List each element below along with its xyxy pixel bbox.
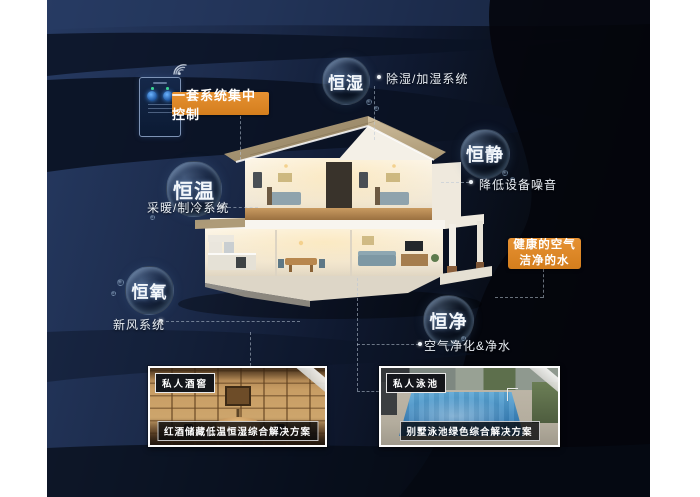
pool-card: 私人泳池 别墅泳池绿色综合解决方案 xyxy=(379,366,560,447)
panel-dial-icon xyxy=(147,91,157,101)
panel-status-leds xyxy=(145,87,175,90)
connector-highlight-horizontal xyxy=(495,297,543,298)
connector-humidity xyxy=(374,86,375,140)
connector-pool-card xyxy=(357,391,379,392)
bubble-oxygen-label: 恒氧 xyxy=(132,278,168,303)
label-temperature-system: 采暖/制冷系统 xyxy=(147,199,229,216)
mini-bubble xyxy=(374,106,379,111)
bubble-humidity: 恒湿 xyxy=(322,57,370,105)
connector-oxygen xyxy=(166,321,300,322)
connector-temperature xyxy=(228,207,258,208)
bubble-quiet-label: 恒静 xyxy=(466,141,504,167)
connector-purity-vertical xyxy=(357,278,358,391)
pool-ladder xyxy=(507,388,518,401)
connector-dot xyxy=(418,342,422,346)
connector-dot xyxy=(377,75,381,79)
highlight-line2: 洁净的水 xyxy=(520,254,570,269)
mini-bubble xyxy=(366,99,372,105)
wine-cellar-caption: 红酒储藏低温恒湿综合解决方案 xyxy=(157,421,318,441)
wifi-icon xyxy=(172,62,188,76)
mini-bubble xyxy=(111,291,116,296)
connector-dot xyxy=(469,180,473,184)
label-quiet-system: 降低设备噪音 xyxy=(479,176,557,193)
wall-art xyxy=(225,386,251,406)
healthy-air-water-badge: 健康的空气 洁净的水 xyxy=(508,238,581,269)
central-control-badge: 一套系统集中控制 xyxy=(172,92,269,115)
label-oxygen-system: 新风系统 xyxy=(113,316,165,333)
label-humidity-system: 除湿/加湿系统 xyxy=(386,70,468,87)
panel-text-row xyxy=(148,104,172,106)
connector-highlight-vertical xyxy=(543,269,544,298)
connector-wine-card xyxy=(250,332,251,366)
connector-quiet xyxy=(441,182,469,183)
connector-purity-horizontal xyxy=(357,344,419,345)
infographic-stage: 一套系统集中控制 恒湿 恒静 恒温 恒氧 恒净 除湿/加湿系统 降低设备噪音 采… xyxy=(0,0,700,497)
highlight-line1: 健康的空气 xyxy=(513,238,576,253)
panel-title-bar xyxy=(153,82,167,84)
mini-bubble xyxy=(117,279,124,286)
connector-control xyxy=(240,116,241,160)
bubble-purity-label: 恒净 xyxy=(430,308,468,334)
pool-tag: 私人泳池 xyxy=(386,373,446,393)
wine-cellar-tag: 私人酒窖 xyxy=(155,373,215,393)
wine-cellar-card: 私人酒窖 红酒储藏低温恒湿综合解决方案 xyxy=(148,366,327,447)
panel-text-row xyxy=(148,108,172,110)
bubble-oxygen: 恒氧 xyxy=(125,266,174,315)
bubble-humidity-label: 恒湿 xyxy=(328,69,364,94)
pool-caption: 别墅泳池绿色综合解决方案 xyxy=(399,421,539,441)
label-purity-system: 空气净化&净水 xyxy=(424,337,511,354)
central-control-label: 一套系统集中控制 xyxy=(172,85,269,123)
panel-text-row xyxy=(148,112,172,114)
